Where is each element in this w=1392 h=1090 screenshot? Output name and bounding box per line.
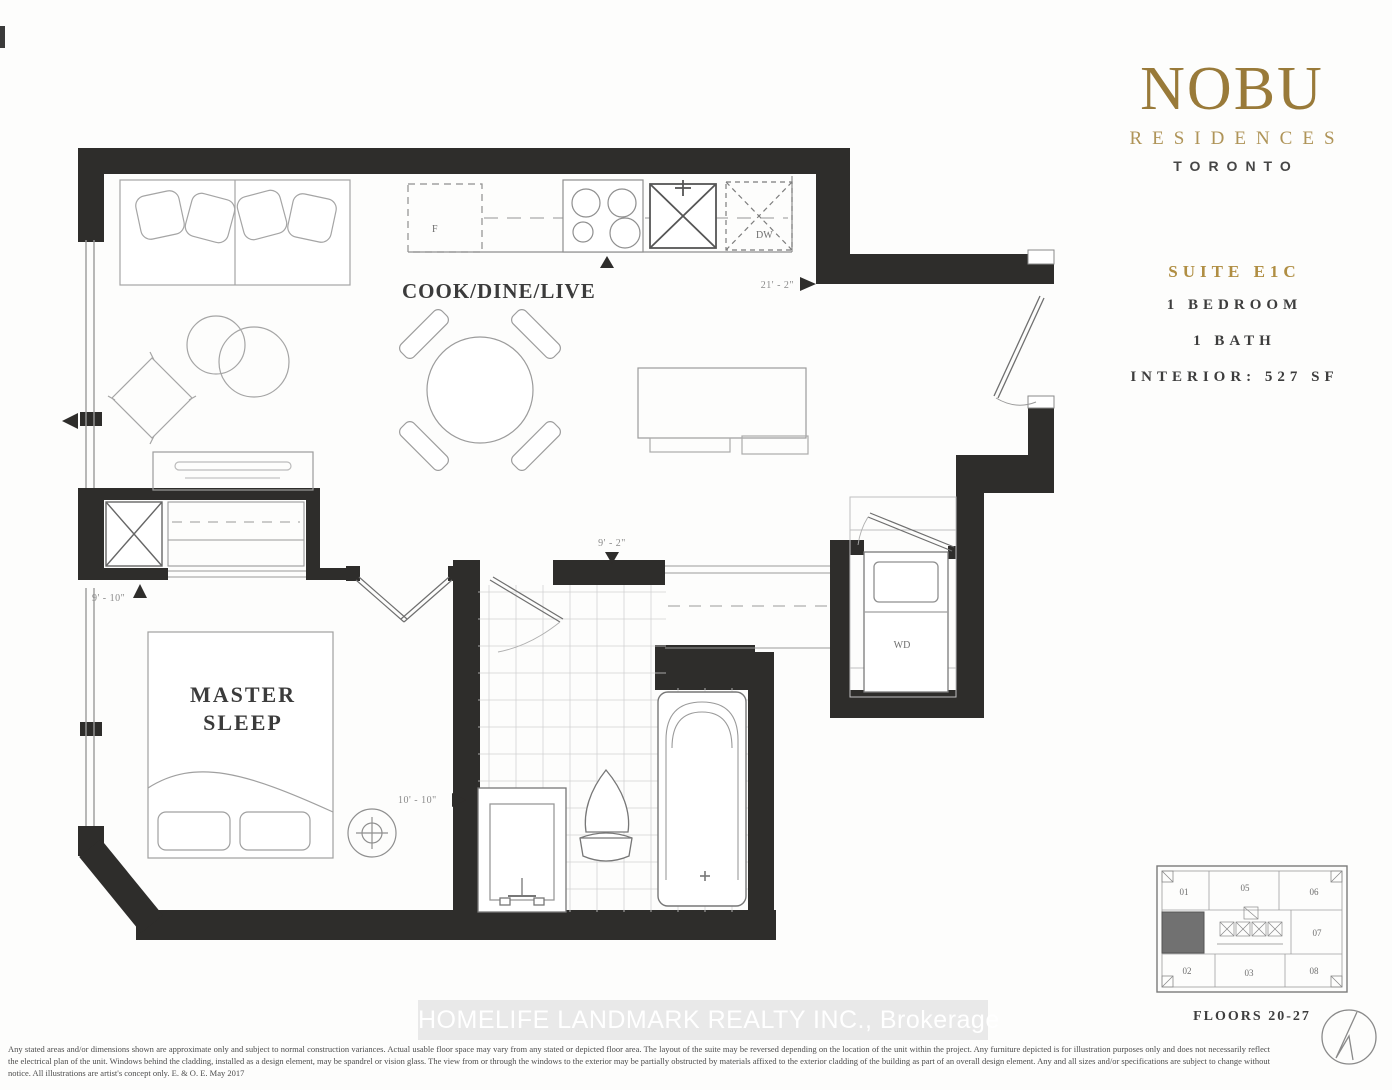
- kitchen: [408, 176, 792, 252]
- dim-bedroom-depth: 9' - 10": [92, 593, 125, 604]
- suite-title: SUITE E1C: [1076, 262, 1388, 282]
- sofa: [120, 180, 350, 285]
- label-wd: WD: [894, 640, 911, 651]
- compass-icon: [1322, 1010, 1376, 1064]
- floorplan-page: 21' - 2" 9' - 2" 10' - 10" 9' - 10" COOK…: [0, 0, 1392, 1090]
- keyplan-core: [1217, 907, 1283, 944]
- bed: [148, 632, 333, 858]
- hall-closet: [665, 566, 830, 648]
- dim-living: 21' - 2": [761, 280, 794, 291]
- key-plan: 01 05 06 07 02 03 08: [1157, 866, 1347, 992]
- brokerage-watermark: HOMELIFE LANDMARK REALTY INC., Brokerage: [418, 1000, 988, 1040]
- label-dw: DW: [756, 230, 773, 241]
- suite-bath-count: 1 BATH: [1076, 333, 1388, 350]
- keyplan-unit-06: 06: [1310, 887, 1320, 897]
- bedroom-doors: [356, 577, 452, 622]
- kitchen-arrow-icon: [600, 256, 614, 268]
- cooktop: [563, 180, 643, 252]
- keyplan-floors-label: FLOORS 20-27: [1193, 1009, 1311, 1024]
- brand-residences-label: RESIDENCES: [1076, 128, 1388, 150]
- vanity: [478, 788, 566, 912]
- fridge: [408, 184, 482, 252]
- wd-door: [858, 513, 954, 551]
- suite-bedroom-count: 1 BEDROOM: [1076, 297, 1388, 314]
- window-arrow-icon: [62, 413, 78, 429]
- linen-closet: [106, 502, 162, 566]
- washer-dryer: [864, 552, 948, 692]
- label-sleep: SLEEP: [203, 710, 283, 735]
- keyplan-unit-08: 08: [1310, 966, 1320, 976]
- keyplan-unit-01: 01: [1180, 887, 1189, 897]
- keyplan-unit-05: 05: [1241, 883, 1251, 893]
- suite-interior-area: INTERIOR: 527 SF: [1076, 369, 1388, 386]
- pouf: [348, 809, 396, 857]
- label-cook-dine-live: COOK/DINE/LIVE: [402, 279, 596, 303]
- dining-set: [397, 307, 563, 473]
- dim-hall: 9' - 2": [598, 538, 626, 549]
- bathroom-door: [490, 577, 563, 652]
- accent-chair: [108, 352, 196, 444]
- coffee-tables: [187, 316, 289, 397]
- disclaimer-text: Any stated areas and/or dimensions shown…: [8, 1044, 1270, 1079]
- dim-bedroom-width: 10' - 10": [398, 795, 437, 806]
- brand-city-label: TORONTO: [1076, 158, 1388, 174]
- keyplan-unit-03: 03: [1245, 968, 1255, 978]
- scan-artifact: [0, 26, 5, 48]
- wardrobe: [168, 502, 306, 577]
- chamfer-wall: [90, 848, 152, 924]
- keyplan-unit-02: 02: [1183, 966, 1192, 976]
- label-fridge: F: [432, 224, 438, 235]
- bathtub: [658, 692, 746, 906]
- island: [638, 368, 808, 454]
- keyplan-highlighted-unit: [1162, 912, 1204, 953]
- tv-console: [153, 452, 313, 490]
- keyplan-unit-07: 07: [1313, 928, 1323, 938]
- sink: [650, 180, 716, 248]
- label-master: MASTER: [190, 682, 296, 707]
- brand-logo: NOBU: [1076, 58, 1388, 120]
